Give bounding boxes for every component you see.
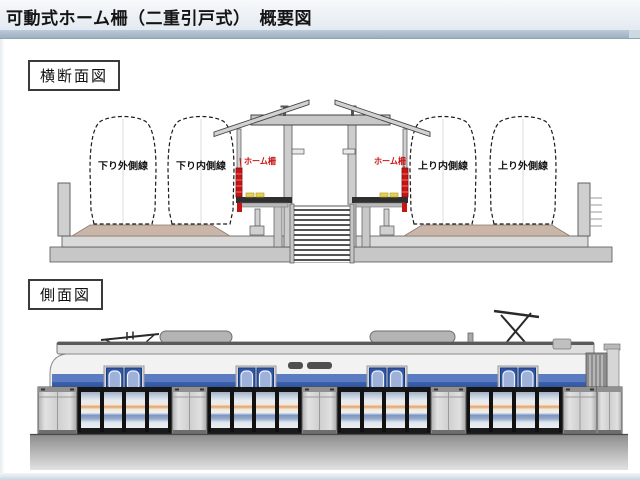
fence-label-left: ホーム柵 xyxy=(244,156,276,166)
car-sign xyxy=(288,362,303,369)
tactile-block xyxy=(380,193,388,197)
left-retaining-wall xyxy=(58,183,70,236)
tactile-block xyxy=(256,193,264,197)
title-underline-end xyxy=(629,30,640,38)
title-underline-bar xyxy=(0,30,640,39)
roof-box xyxy=(553,339,571,349)
hanging-sign-left xyxy=(292,149,304,154)
fence-glass-group xyxy=(337,387,431,434)
track-label-down-outer: 下り外側線 xyxy=(98,160,149,172)
ac-unit xyxy=(370,331,455,343)
fence-cabinet xyxy=(563,387,597,434)
page-left-edge xyxy=(0,39,5,473)
track-label-up-inner: 上り内側線 xyxy=(418,160,469,172)
hanging-sign-right xyxy=(343,149,355,154)
ballast-right xyxy=(404,225,570,236)
tactile-block xyxy=(390,193,398,197)
title-bar: 可動式ホーム柵（二重引戸式） 概要図 xyxy=(0,0,640,30)
fence-cabinet xyxy=(38,387,77,434)
wall-hatch xyxy=(590,198,602,226)
page-bottom-edge xyxy=(0,473,640,480)
side-view-diagram xyxy=(25,300,635,478)
stairs xyxy=(290,204,354,263)
platform-screen-fence xyxy=(38,387,622,434)
slide: 可動式ホーム柵（二重引戸式） 概要図 横断面図 xyxy=(0,0,640,480)
track-label-up-outer: 上り外側線 xyxy=(498,160,549,172)
page-title: 可動式ホーム柵（二重引戸式） 概要図 xyxy=(6,4,312,29)
fence-label-right: ホーム柵 xyxy=(374,156,406,166)
car-sign xyxy=(307,362,332,369)
cross-section-label-box: 横断面図 xyxy=(28,60,120,91)
cross-section-diagram: 下り外側線 下り内側線 上り内側線 上り外側線 xyxy=(30,95,630,267)
fence-cabinet xyxy=(172,387,207,434)
ac-unit xyxy=(160,331,232,343)
track-label-down-inner: 下り内側線 xyxy=(176,160,227,172)
fence-glass-group xyxy=(77,387,172,434)
ballast-left xyxy=(72,225,230,236)
tactile-block xyxy=(246,193,254,197)
fence-cabinet xyxy=(302,387,337,434)
fence-glass-group xyxy=(466,387,563,434)
fence-glass-group xyxy=(207,387,302,434)
fence-cabinet-end xyxy=(597,387,622,434)
fence-cabinet xyxy=(431,387,466,434)
platform-ground xyxy=(30,434,628,470)
cross-section-label: 横断面図 xyxy=(40,68,108,85)
right-retaining-wall xyxy=(578,183,590,236)
